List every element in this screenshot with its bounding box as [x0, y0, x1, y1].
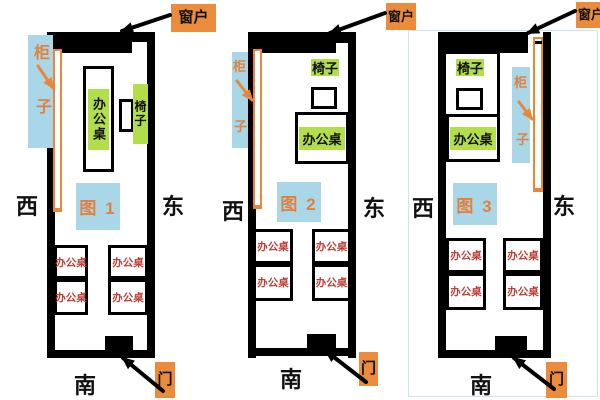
door-label-2: 门: [359, 352, 378, 386]
room2-door: [307, 334, 336, 352]
desk-text: 办公桌: [257, 239, 289, 254]
room1-chair-label: 椅子: [133, 84, 148, 144]
window-arrow-2: [330, 13, 385, 33]
room1-door: [105, 336, 133, 354]
room3-desk-cell: 办公桌: [446, 273, 486, 310]
room1-cabinet-note: 柜 子: [28, 35, 53, 148]
figure-label-3: 图 3: [453, 183, 497, 225]
room3-chair-label: 椅子: [456, 59, 484, 76]
figure-label-2: 图 2: [277, 182, 321, 222]
room1-desk-cell: 办公桌: [108, 279, 148, 315]
desk-text: 办公桌: [112, 255, 144, 270]
room3-cabinet-top-detail: [535, 41, 542, 44]
room2-desk-cell: 办公桌: [312, 264, 351, 301]
desk-text: 办公桌: [507, 248, 539, 263]
desk-text: 办公桌: [450, 284, 482, 299]
room2-desk-cell: 办公桌: [253, 229, 293, 264]
room1-bottom-wall: [47, 350, 155, 358]
room3-desk-cell: 办公桌: [503, 273, 543, 310]
room2-right-wall: [348, 32, 356, 358]
room2-desk-cell: 办公桌: [253, 264, 293, 301]
cabinet-note-char-top: 柜: [233, 56, 246, 75]
window-arrow-1: [122, 15, 170, 31]
room2-chair: [311, 87, 337, 109]
room2-cabinet: [253, 49, 262, 209]
room3-south: 南: [470, 368, 492, 400]
room2-bottom-wall: [248, 348, 356, 356]
cabinet-note-char-bottom: 子: [36, 93, 52, 117]
room3-left-wall: [438, 32, 446, 358]
room3-chair: [456, 88, 483, 110]
room3-window-wall: [438, 32, 528, 53]
room1-desk-cell: 办公桌: [54, 245, 88, 279]
room2-west: 西: [222, 194, 244, 226]
desk-text: 办公桌: [55, 290, 87, 305]
cabinet-note-char-bottom: 子: [234, 116, 247, 135]
desk-text: 办公桌: [257, 275, 289, 290]
room1-desk-cell: 办公桌: [54, 279, 88, 315]
desk-text: 办公桌: [316, 239, 348, 254]
room1-desk-cell: 办公桌: [108, 245, 148, 279]
room1-south: 南: [74, 368, 96, 400]
room1-right-wall: [147, 32, 155, 358]
cabinet-note-char-top: 柜: [514, 72, 527, 91]
room1-desk: 办公桌: [83, 66, 114, 172]
room3-desk: 办公桌: [446, 114, 500, 162]
room2-cabinet-note: 柜 子: [232, 52, 248, 148]
room3-cabinet: [533, 37, 543, 192]
desk-text: 办公桌: [450, 248, 482, 263]
room2-south: 南: [280, 362, 302, 394]
room3-west: 西: [412, 191, 434, 223]
cabinet-note-char-top: 柜: [34, 39, 50, 63]
desk-text: 办公桌: [112, 290, 144, 305]
three-room-layout-diagram: 窗户 柜 子 办公桌 椅子 图 1 办公桌 办公桌 办公桌 办公桌 西 东 南 …: [0, 0, 600, 400]
room3-desk-cell: 办公桌: [446, 238, 486, 273]
figure-label-1: 图 1: [76, 183, 120, 230]
room2-desk-cell: 办公桌: [312, 229, 351, 264]
room3-chair-area: 椅子: [446, 51, 500, 114]
door-label-1: 门: [155, 362, 175, 398]
room3-door: [495, 336, 527, 354]
room2-east: 东: [363, 191, 385, 223]
window-label-1: 窗户: [171, 4, 216, 32]
room1-west: 西: [16, 189, 38, 221]
room1-east: 东: [162, 189, 184, 221]
desk-text: 办公桌: [507, 284, 539, 299]
room2-desk-label: 办公桌: [299, 127, 344, 150]
room3-cabinet-note: 柜 子: [512, 67, 530, 163]
room1-top-wall-thin: [130, 32, 155, 42]
room2-chair-label: 椅子: [311, 59, 339, 76]
room3-east: 东: [553, 189, 575, 221]
room1-desk-label: 办公桌: [88, 89, 109, 150]
room3-desk-label: 办公桌: [450, 127, 495, 150]
room2-desk: 办公桌: [295, 112, 349, 164]
window-label-3: 窗户: [576, 2, 600, 28]
window-label-2: 窗户: [386, 3, 416, 30]
room1-cabinet: [53, 49, 62, 212]
door-label-3: 门: [546, 362, 567, 398]
desk-text: 办公桌: [316, 275, 348, 290]
cabinet-note-char-bottom: 子: [516, 129, 529, 148]
room2-top-wall-thin: [334, 32, 356, 43]
room3-desk-cell: 办公桌: [503, 238, 543, 273]
desk-text: 办公桌: [55, 255, 87, 270]
room3-right-wall: [543, 32, 551, 358]
